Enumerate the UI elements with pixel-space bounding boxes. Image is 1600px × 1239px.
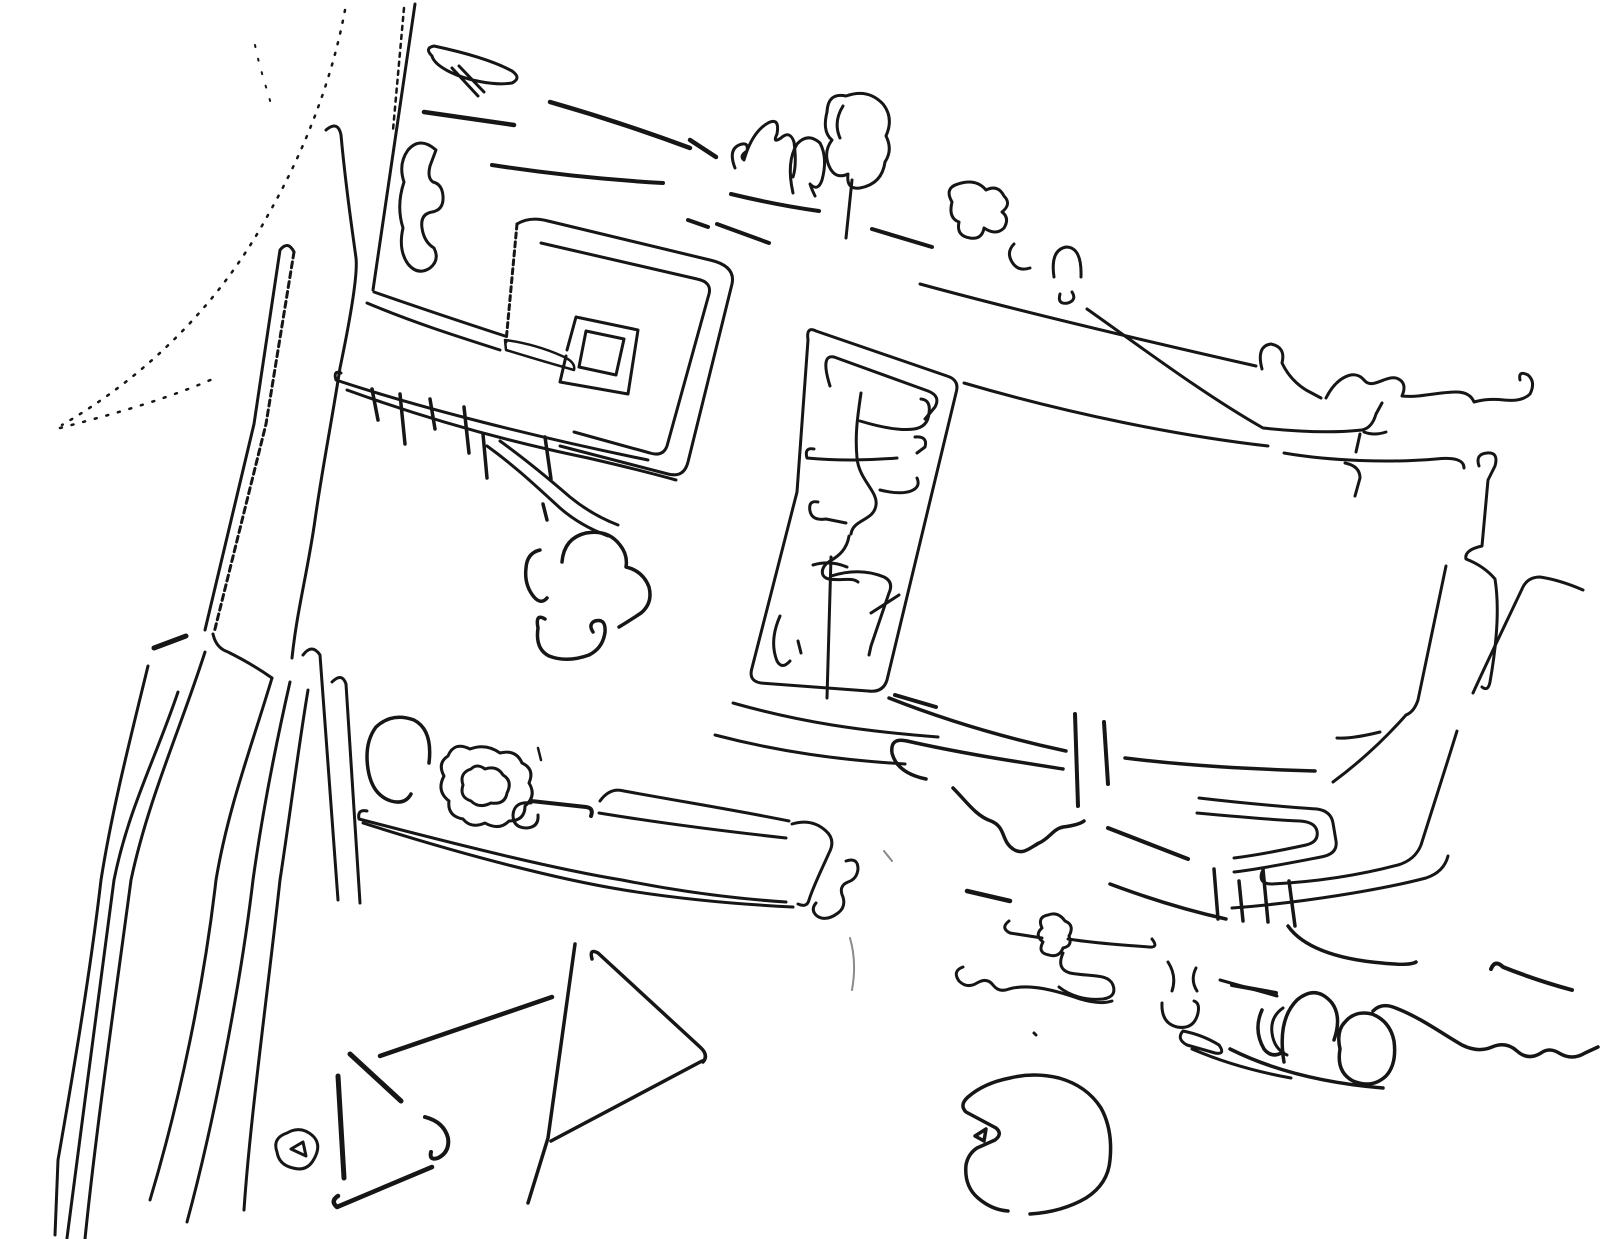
flower-hole — [462, 766, 509, 806]
dash-diag-bl — [350, 1054, 401, 1101]
lower-band-3 — [85, 652, 205, 1239]
long-diag-bl — [380, 997, 552, 1056]
long-line-lower — [964, 383, 1464, 468]
lower-band-5 — [187, 682, 290, 1222]
triangle-hypotenuse — [551, 1061, 702, 1141]
stubs-vertical — [1214, 869, 1243, 921]
elbow-right — [1473, 577, 1583, 693]
top-road-dash-1 — [424, 112, 514, 125]
road-left-median-b — [214, 252, 294, 633]
long-line-upper — [920, 284, 1321, 398]
spiral-left-edge — [506, 224, 517, 342]
squiggle-tail — [813, 860, 858, 918]
triangle-left-line — [528, 944, 575, 1203]
tree-curl — [400, 143, 443, 271]
tree-two-bump — [732, 121, 795, 177]
page: { "meta": { "background_color": "#ffffff… — [0, 0, 1600, 1239]
triangle-top-side — [591, 951, 705, 1062]
road-up-b — [599, 813, 786, 838]
dotted-bits-top — [255, 45, 272, 108]
tiny-dot — [1034, 1033, 1036, 1035]
road-low-a — [359, 811, 786, 902]
bottom-line-mr — [1110, 884, 1226, 919]
road-left-median-a — [205, 245, 294, 630]
top-road-dash-7 — [717, 224, 769, 243]
parcel-left-curve — [774, 616, 801, 666]
road-left-right-edge — [292, 126, 356, 658]
dash-diагonal-mr — [1108, 828, 1188, 859]
line-art-svg — [0, 0, 1600, 1239]
band-ext-b — [500, 441, 618, 525]
road-left-diagonal — [373, 4, 415, 290]
spiral-inner-hole — [579, 331, 624, 375]
curve-bottom-right — [1288, 926, 1416, 964]
loops-bottom-right — [1230, 993, 1395, 1088]
dash-br-right — [1491, 963, 1572, 990]
junction-link — [213, 634, 272, 678]
lower-band-6 — [244, 690, 308, 1210]
spiral-outer — [517, 219, 733, 475]
wavy-wm — [953, 788, 1084, 852]
top-road-dash-3 — [492, 165, 663, 183]
trefoil-blob — [526, 532, 650, 659]
wiggle-right-top — [1326, 373, 1533, 402]
line-art-canvas — [0, 0, 1600, 1239]
junction-dash — [154, 636, 186, 648]
bar-vertical-1 — [1075, 714, 1078, 806]
lower-band-7 — [303, 649, 338, 900]
pentagon-blob — [963, 1075, 1111, 1214]
flower-outer — [441, 746, 532, 826]
field-right-edge — [1333, 566, 1446, 782]
parcel-outline — [751, 330, 957, 692]
field-right-inner — [1337, 732, 1380, 738]
top-road-dash-2 — [550, 102, 690, 148]
dotted-arc-main — [62, 10, 345, 425]
dotted-arc-lower — [60, 378, 215, 428]
top-road-dash-6 — [688, 220, 708, 227]
bar-vertical-2 — [1104, 722, 1108, 784]
bar-bottom-left — [338, 1076, 344, 1178]
parcel-bottom-line-1 — [733, 703, 938, 737]
band-lower-a — [335, 372, 648, 460]
triangle-small — [276, 1130, 318, 1169]
dash-bottom-bl — [334, 1167, 432, 1207]
step-band-b — [1197, 813, 1317, 858]
wavy-bottom-right — [1373, 1006, 1598, 1057]
tree-big-blob — [825, 93, 889, 238]
tree-hook-blob — [428, 46, 517, 96]
spiral-inner-square — [560, 317, 638, 394]
hook-bl — [425, 1117, 448, 1159]
dash-bottom-mid — [967, 891, 1010, 901]
dash-br-left — [1232, 985, 1276, 993]
ring-open — [367, 717, 430, 802]
parcel-bottom-line-2 — [715, 735, 905, 764]
parcel-branches-upper — [806, 393, 929, 534]
step-band-a — [1199, 798, 1336, 872]
bar-from-flower — [531, 801, 592, 816]
bars-bottom-right — [1263, 869, 1295, 926]
s-hook-road-end — [792, 822, 832, 905]
top-road-dash-4 — [690, 140, 716, 157]
top-road-dash-5 — [731, 194, 819, 211]
tree-cluster-right — [949, 182, 1081, 303]
road-mr-right — [1125, 758, 1315, 771]
top-road-dash-8 — [872, 229, 932, 247]
tiny-tick — [538, 748, 541, 760]
hook-down-mid — [1345, 463, 1360, 496]
lower-band-1 — [55, 666, 148, 1235]
